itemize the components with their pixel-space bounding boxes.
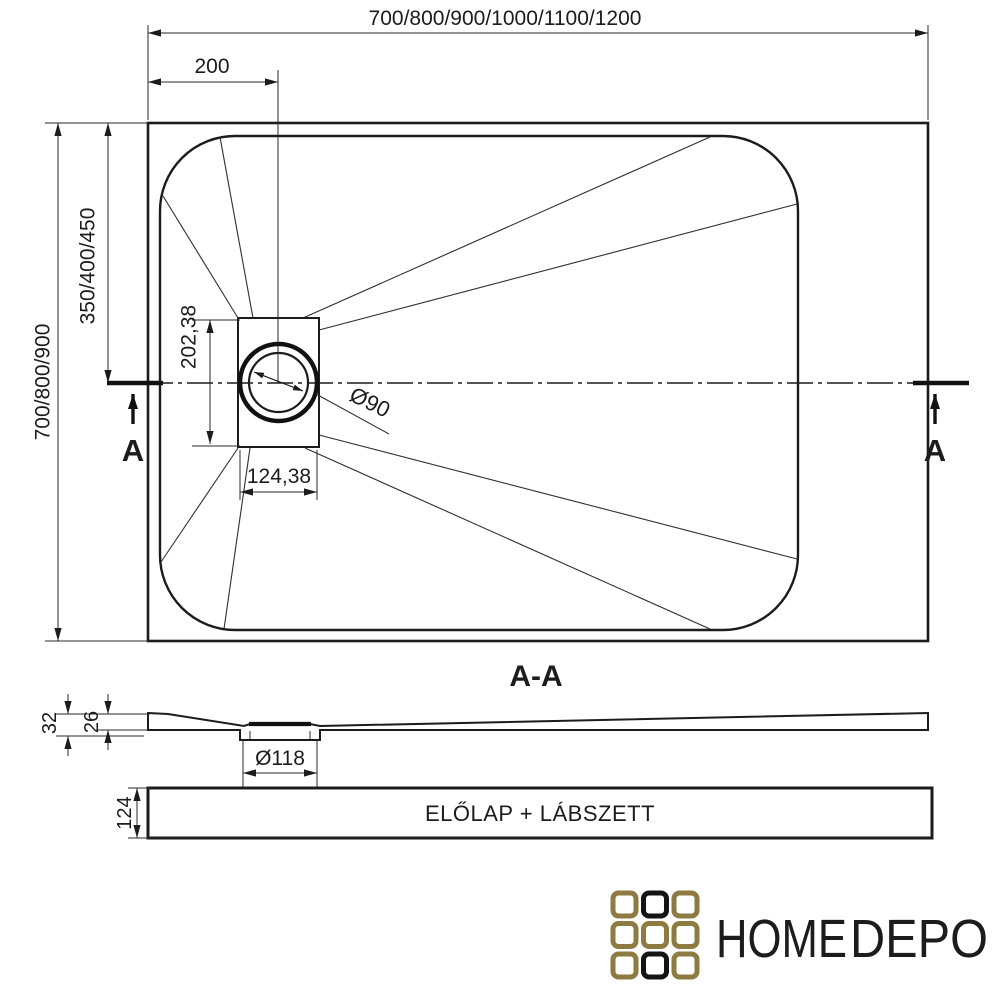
fall-line [319, 435, 797, 559]
cut-letter-left: A [122, 433, 144, 468]
front-panel-label: ELŐLAP + LÁBSZETT [425, 801, 655, 826]
drain-diameter-label: Ø90 [346, 382, 394, 423]
shower-tray-drawing: Ø90 A A 700/800/900/1000/1100/1200 200 [0, 0, 1000, 1000]
fall-line [220, 137, 253, 318]
dim-drain-offset-label: 200 [194, 55, 229, 78]
dim-drain-hole-label: Ø118 [255, 747, 305, 770]
dim-panel-height-label: 124 [114, 796, 136, 829]
tray-outline [148, 123, 928, 641]
technical-drawing-page: Ø90 A A 700/800/900/1000/1100/1200 200 [0, 0, 1000, 1000]
top-view: Ø90 A A 700/800/900/1000/1100/1200 200 [31, 7, 969, 641]
logo-square [644, 954, 667, 977]
dim-overall-depth-label: 700/800/900 [31, 324, 54, 441]
fall-line [303, 137, 710, 318]
fall-line [163, 196, 238, 318]
dim-total-thickness-label: 32 [39, 712, 61, 734]
logo-square [613, 954, 636, 977]
fall-line [319, 204, 797, 330]
dimensions-top-view: 700/800/900/1000/1100/1200 200 700/800/9… [31, 7, 928, 641]
dim-recess-height-label: 202,38 [177, 305, 200, 369]
logo-square [674, 893, 697, 916]
logo-square [613, 924, 636, 947]
dim-overall-width-label: 700/800/900/1000/1100/1200 [369, 7, 642, 30]
logo-square [644, 924, 667, 947]
logo-word-home: HOME [716, 909, 847, 969]
fall-line [305, 448, 710, 629]
brand-logo: HOME DEPO [613, 893, 988, 977]
tray-cross-section [148, 713, 928, 740]
dim-recess-width-label: 124,38 [247, 465, 311, 488]
logo-word-depo: DEPO [850, 909, 988, 969]
dim-drain-offset-y-label: 350/400/450 [76, 208, 99, 325]
dim-edge-thickness-label: 26 [81, 711, 103, 733]
drain: Ø90 [238, 70, 394, 447]
section-view: A-A 32 26 Ø118 [39, 660, 928, 788]
logo-squares-icon [613, 893, 697, 977]
logo-square [644, 893, 667, 916]
fall-line [161, 448, 238, 562]
tray-outer-edge [148, 123, 928, 641]
cut-letter-right: A [924, 433, 946, 468]
front-panel: ELŐLAP + LÁBSZETT 124 [114, 788, 932, 838]
section-title: A-A [509, 660, 562, 693]
logo-square [613, 893, 636, 916]
logo-square [674, 924, 697, 947]
logo-square [674, 954, 697, 977]
